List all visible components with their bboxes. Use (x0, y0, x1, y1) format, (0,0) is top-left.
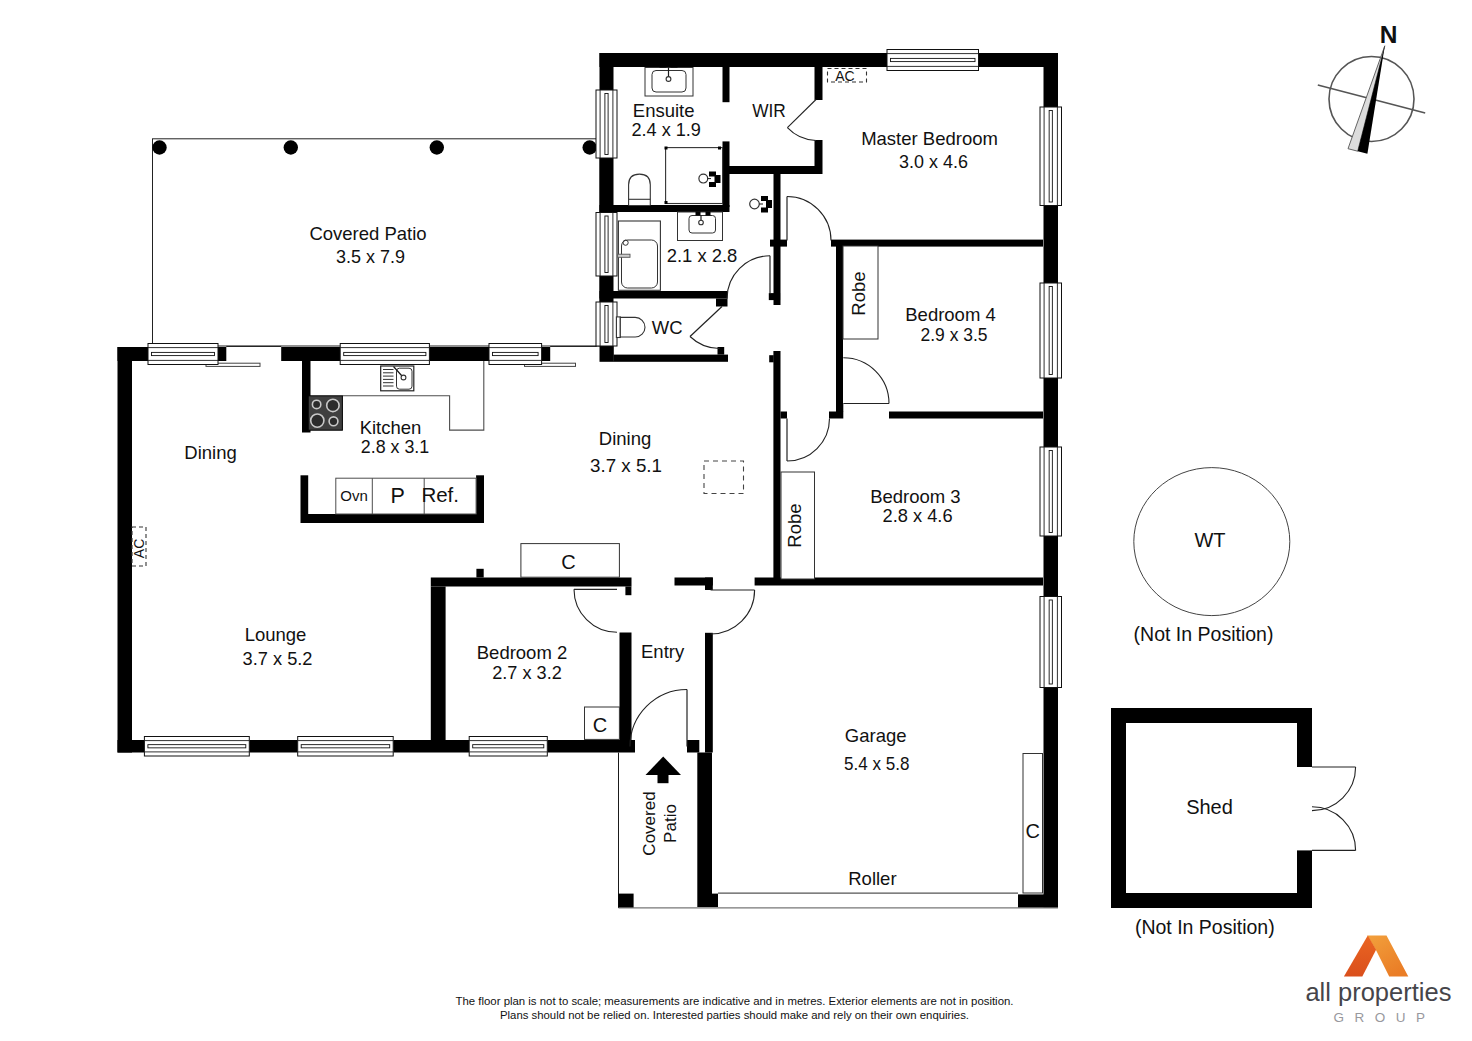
svg-text:Robe: Robe (848, 271, 869, 315)
svg-text:3.7 x 5.2: 3.7 x 5.2 (243, 648, 313, 669)
svg-text:2.1 x 2.8: 2.1 x 2.8 (667, 245, 738, 266)
svg-text:Covered Patio: Covered Patio (309, 223, 426, 244)
svg-text:2.4 x 1.9: 2.4 x 1.9 (631, 119, 701, 140)
svg-text:Master Bedroom: Master Bedroom (861, 128, 998, 149)
svg-text:3.5 x 7.9: 3.5 x 7.9 (336, 246, 405, 267)
svg-text:Lounge: Lounge (245, 624, 307, 645)
svg-text:Bedroom 4: Bedroom 4 (905, 304, 996, 325)
svg-text:5.4 x 5.8: 5.4 x 5.8 (844, 753, 909, 774)
svg-text:C: C (593, 714, 607, 736)
svg-text:Roller: Roller (848, 868, 896, 889)
svg-text:Robe: Robe (784, 503, 805, 547)
svg-text:(Not In Position): (Not In Position) (1134, 623, 1274, 645)
svg-text:Bedroom 3: Bedroom 3 (870, 486, 961, 507)
svg-text:C: C (561, 551, 575, 573)
svg-text:Covered: Covered (640, 791, 659, 855)
svg-text:2.7 x 3.2: 2.7 x 3.2 (492, 662, 562, 683)
svg-text:2.8 x 3.1: 2.8 x 3.1 (361, 436, 430, 457)
svg-text:Ref.: Ref. (421, 483, 459, 506)
svg-text:(Not In Position): (Not In Position) (1135, 916, 1275, 938)
svg-text:WT: WT (1194, 529, 1225, 551)
svg-text:GROUP: GROUP (1333, 1010, 1435, 1025)
svg-text:Ensuite: Ensuite (633, 100, 695, 121)
svg-text:WIR: WIR (752, 100, 786, 121)
svg-text:Entry: Entry (641, 641, 685, 662)
svg-text:Shed: Shed (1186, 796, 1233, 818)
svg-text:Dining: Dining (184, 442, 236, 463)
svg-text:P: P (391, 484, 405, 508)
svg-text:Patio: Patio (661, 804, 680, 843)
svg-text:Dining: Dining (599, 428, 651, 449)
svg-text:WC: WC (652, 317, 683, 338)
svg-text:2.8 x 4.6: 2.8 x 4.6 (883, 505, 953, 526)
svg-text:Plans should not be relied on.: Plans should not be relied on. Intereste… (500, 1009, 969, 1021)
svg-text:3.7 x 5.1: 3.7 x 5.1 (590, 455, 662, 476)
svg-text:Ovn: Ovn (340, 487, 368, 504)
svg-text:3.0 x 4.6: 3.0 x 4.6 (899, 151, 968, 172)
svg-text:AC: AC (131, 539, 147, 558)
svg-text:AC: AC (835, 68, 854, 84)
svg-text:The floor plan is not to scale: The floor plan is not to scale; measurem… (456, 995, 1014, 1007)
svg-text:N: N (1380, 21, 1398, 48)
svg-text:Bedroom 2: Bedroom 2 (477, 642, 568, 663)
svg-text:2.9 x 3.5: 2.9 x 3.5 (921, 324, 988, 345)
svg-text:C: C (1026, 820, 1040, 842)
svg-text:Garage: Garage (845, 725, 907, 746)
svg-text:all properties: all properties (1305, 978, 1451, 1006)
